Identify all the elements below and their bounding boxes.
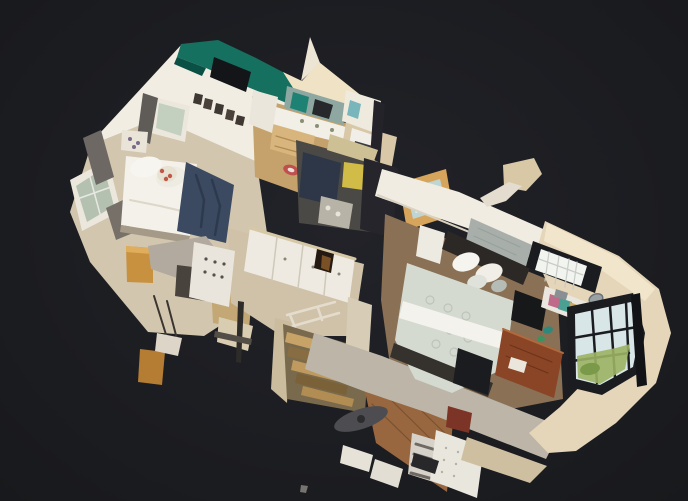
- wall-art-dots-dot[interactable]: [132, 145, 136, 149]
- door-knobs-dot[interactable]: [284, 258, 287, 261]
- gallery-frames-dot[interactable]: [213, 260, 216, 263]
- wall-art-cluster[interactable]: [121, 130, 148, 153]
- counter-items-dot[interactable]: [300, 119, 304, 123]
- bookcase-peg-holes-dot[interactable]: [455, 463, 457, 465]
- counter-items-dot[interactable]: [315, 124, 319, 128]
- clutter-white-bits-dot[interactable]: [336, 212, 341, 217]
- bookcase-peg-holes-dot[interactable]: [443, 459, 445, 461]
- floral-pillow-dots-dot[interactable]: [164, 177, 168, 181]
- door-knobs-dot[interactable]: [312, 266, 315, 269]
- dollhouse-svg[interactable]: [0, 0, 688, 501]
- gallery-wall[interactable]: [189, 242, 235, 307]
- wall-art-dots-dot[interactable]: [136, 141, 140, 145]
- gallery-frames-dot[interactable]: [222, 262, 225, 265]
- floral-pillow-dots-dot[interactable]: [168, 174, 172, 178]
- gallery-frames-dot[interactable]: [220, 275, 223, 278]
- bookcase-peg-holes-dot[interactable]: [441, 471, 443, 473]
- bookcase-peg-holes-dot[interactable]: [445, 447, 447, 449]
- door-frame-piece-1[interactable]: [340, 445, 373, 472]
- clutter-white-bits-dot[interactable]: [326, 206, 331, 211]
- bookcase-peg-holes-dot[interactable]: [457, 451, 459, 453]
- desk-green-cup[interactable]: [537, 336, 545, 342]
- tiny-mesh-speck[interactable]: [300, 485, 308, 493]
- gallery-frames-dot[interactable]: [204, 257, 207, 260]
- dollhouse-model[interactable]: [70, 37, 671, 498]
- floral-pillow-dots-dot[interactable]: [160, 169, 164, 173]
- fan-hub[interactable]: [357, 415, 365, 423]
- dollhouse-viewer[interactable]: [0, 0, 688, 501]
- dresser-wood-2[interactable]: [138, 349, 165, 385]
- door-knobs-dot[interactable]: [338, 273, 341, 276]
- wall-art-dots-dot[interactable]: [128, 137, 132, 141]
- fan-hub-dot[interactable]: [357, 415, 365, 423]
- floating-mesh-fragment-white[interactable]: [480, 182, 522, 207]
- gallery-frames-dot[interactable]: [203, 270, 206, 273]
- gallery-frames-dot[interactable]: [212, 273, 215, 276]
- door-frame-piece-2[interactable]: [370, 459, 403, 488]
- bookcase-peg-holes-dot[interactable]: [453, 475, 455, 477]
- counter-items-dot[interactable]: [330, 128, 334, 132]
